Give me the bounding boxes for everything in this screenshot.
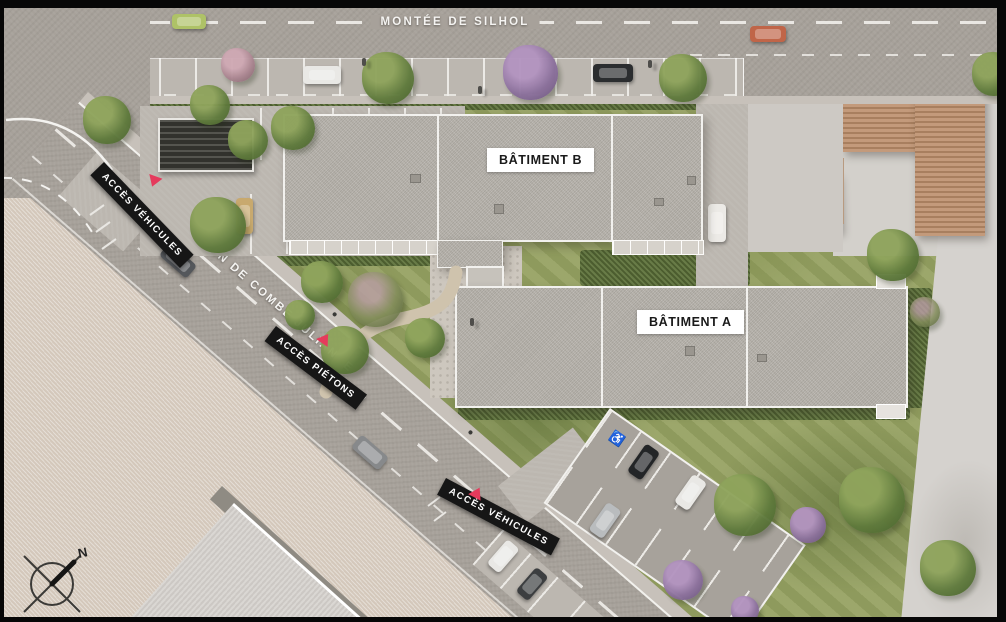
pedestrian — [470, 318, 474, 326]
tree-flowering — [663, 560, 703, 600]
shrub — [348, 272, 403, 327]
car-white — [303, 66, 341, 84]
frame-top — [0, 0, 1006, 8]
tree-flowering — [221, 48, 255, 82]
tree — [362, 52, 414, 104]
car-lime — [172, 14, 206, 29]
junction-curve-dashed — [2, 178, 92, 232]
tree — [839, 467, 905, 533]
cyclist — [478, 86, 482, 94]
tree — [867, 229, 919, 281]
tree — [659, 54, 707, 102]
tree — [301, 261, 343, 303]
tree-flowering — [790, 507, 826, 543]
tree — [405, 318, 445, 358]
tree — [190, 85, 230, 125]
pedestrian — [648, 60, 652, 68]
street-name-montee: MONTÉE DE SILHOL — [371, 15, 540, 29]
tree — [920, 540, 976, 596]
tree-flowering — [503, 45, 558, 100]
car-orange — [750, 26, 786, 42]
tree — [228, 120, 268, 160]
frame-left — [0, 0, 4, 622]
site-plan: CHEMIN DE COMBE JULIANNE BÂTIMENT B — [0, 0, 1006, 622]
shrub — [910, 297, 940, 327]
tree — [83, 96, 131, 144]
pedestrian — [362, 58, 366, 66]
tree — [285, 300, 315, 330]
road-hatch-marks — [90, 205, 446, 521]
compass-north-label: N — [77, 544, 89, 561]
tree — [271, 106, 315, 150]
car-black — [593, 64, 633, 82]
frame-bottom — [0, 617, 1006, 622]
frame-right — [997, 0, 1006, 622]
tree — [714, 474, 776, 536]
compass: N — [24, 544, 89, 612]
tree — [190, 197, 246, 253]
